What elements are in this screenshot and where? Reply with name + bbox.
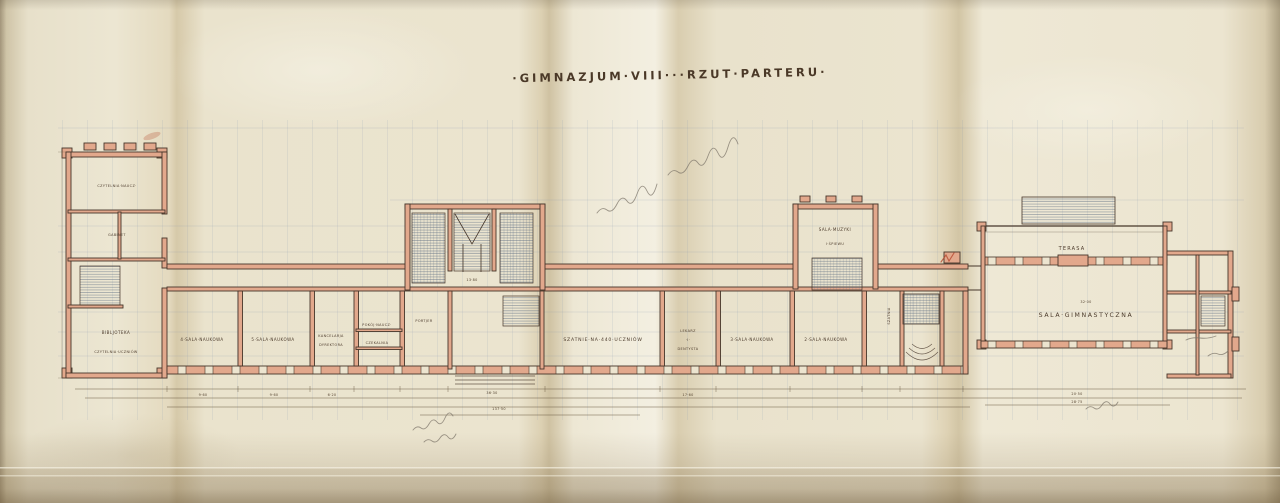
room-label-dyrektora: DYREKTORA [319,343,343,347]
room-label-sala5: 5·SALA·NAUKOWA [251,337,294,342]
room-label-czytelnia-uczniow: CZYTELNIA·UCZNIÓW [94,349,138,354]
room-label-lekarz: LEKARZ [680,329,696,333]
side-stair [503,296,539,326]
construction-grid [58,120,1244,420]
room-label-lekarz-i: ·I· [686,338,690,342]
dim-17-60: 17·60 [682,393,693,397]
room-label-gimnastyczna: SALA·GIMNASTYCZNA [1039,312,1134,319]
room-label-muzyki: SALA·MUZYKI [819,227,851,232]
room-label-biblioteka: BIBLJOTEKA [102,330,130,335]
dim-13-80: 13·80 [466,278,477,282]
room-label-spiewu: I·ŚPIEWU [826,241,845,246]
room-label-dentysta: DENTYSTA [678,347,699,351]
dim-6-20: 6·20 [328,393,337,397]
dim-36-30: 36·30 [486,391,497,395]
room-label-sala4: 4·SALA·NAUKOWA [180,337,223,342]
room-label-pokoj-naucz: POKÓJ·NAUCZ· [362,322,391,327]
pencil-note-bottom-2 [424,434,456,442]
terrace-steps [1022,197,1115,224]
room-label-sala2: 2·SALA·NAUKOWA [804,337,847,342]
room-label-czekalnia: CZEKALNIA [366,341,389,345]
room-label-sala3: 3·SALA·NAUKOWA [730,337,773,342]
dim-137-50: 137·50 [492,407,506,411]
blueprint-sheet: ·GIMNAZJUM·VIII···RZUT·PARTERU· [0,0,1280,503]
room-label-portjer: PORTJER [415,319,432,323]
room-label-szatnia: SZATNIA [887,307,891,325]
dim-20-50: 20·50 [1071,392,1082,396]
room-label-terasa: TERASA [1058,246,1086,252]
floor-plan-drawing: ·GIMNAZJUM·VIII···RZUT·PARTERU· [0,0,1280,503]
dim-9-60-b: 9·60 [270,393,279,397]
dim-32-00: 32·00 [1080,300,1091,304]
left-wing-stair [80,266,120,305]
dim-9-60-a: 9·60 [199,393,208,397]
dim-28-75: 28·75 [1071,400,1082,404]
room-label-gabinet: GABINET [108,233,126,237]
south-window-wall [167,366,968,374]
room-label-kancelarja: KANCELARJA [318,334,344,338]
room-label-czytelnia-naucz: CZYTELNIA·NAUCZ· [97,184,136,188]
drawing-title: ·GIMNAZJUM·VIII···RZUT·PARTERU· [512,65,828,86]
room-label-szatnie: SZATNIE·NA·440·UCZNIÓW [563,336,642,343]
